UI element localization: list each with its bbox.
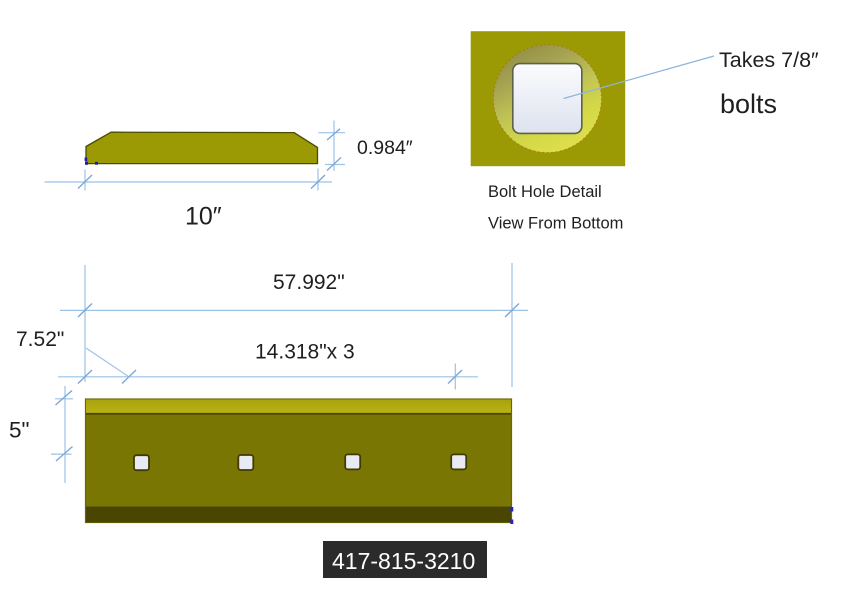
svg-text:View From Bottom: View From Bottom (488, 215, 623, 233)
svg-text:14.318"x 3: 14.318"x 3 (255, 341, 355, 364)
svg-text:Bolt Hole Detail: Bolt Hole Detail (488, 183, 602, 201)
svg-text:bolts: bolts (720, 89, 777, 119)
svg-text:57.992": 57.992" (273, 271, 345, 294)
svg-text:417-815-3210: 417-815-3210 (332, 548, 475, 574)
svg-text:Takes 7/8″: Takes 7/8″ (719, 48, 819, 72)
svg-text:7.52": 7.52" (16, 328, 64, 351)
svg-text:10″: 10″ (185, 203, 222, 231)
svg-text:5": 5" (9, 418, 30, 443)
svg-text:0.984″: 0.984″ (357, 137, 413, 159)
